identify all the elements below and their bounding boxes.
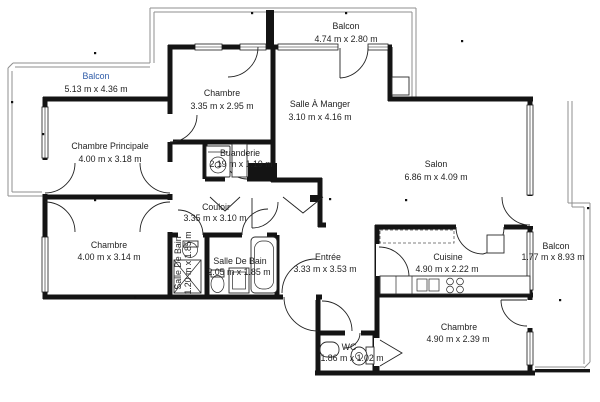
kitchen-appliance [487,235,504,253]
balcony-edge [13,63,150,67]
balcony-outlines [8,8,590,372]
room-label-chambre-principale: Chambre Principale [71,141,148,151]
room-dims-balcon-droite: 1.77 m x 8.93 m [521,252,584,262]
window [195,44,222,50]
kitchen-counter [380,276,530,294]
door-arc [501,300,527,326]
terrace-edge [412,8,416,98]
room-dims-chambre-ouest: 4.00 m x 3.14 m [77,252,140,262]
door-arc [322,301,352,331]
window [42,237,48,292]
window [527,332,533,365]
door-arc [228,47,258,77]
kitchen-upper-cabinets [380,230,454,243]
balcony-right-edge [568,203,590,207]
room-dims-wc: 1.86 m x 1.02 m [320,353,383,363]
room-label-chambre-ouest: Chambre [91,240,127,250]
door-arc [340,48,368,78]
room-dims-salle-a-manger: 3.10 m x 4.16 m [288,112,351,122]
room-label-balcon-top: Balcon [333,21,360,31]
room-label-couloir: Couloir [202,202,230,212]
balcony-chamfer [584,362,590,368]
room-label-salon: Salon [425,159,448,169]
door-arc [456,227,483,254]
door-arc [252,198,278,228]
window [527,105,533,195]
room-dims-chambre-principale: 4.00 m x 3.18 m [78,154,141,164]
floor-plan: Balcon 5.13 m x 4.36 m Balcon 4.74 m x 2… [0,0,600,402]
room-dims-chambre-nord: 3.35 m x 2.95 m [190,101,253,111]
room-dims-salon: 6.86 m x 4.09 m [404,172,467,182]
door-arc [170,115,197,142]
room-label-wc: WC [342,342,357,352]
room-label-balcon-droite: Balcon [543,241,570,251]
room-dims-balcon-top: 4.74 m x 2.80 m [314,34,377,44]
door-arc [45,163,75,193]
window [240,44,266,50]
window [278,44,338,50]
room-dims-buanderie: 2.19 m x 1.19 m [209,159,272,169]
room-dims-chambre-sud: 4.90 m x 2.39 m [426,334,489,344]
room-labels: Balcon 5.13 m x 4.36 m Balcon 4.74 m x 2… [64,21,584,363]
balcony-right-edge [584,203,590,364]
doors [45,47,530,366]
room-label-entree: Entrée [315,252,341,262]
room-label-salle-a-manger: Salle À Manger [290,99,350,109]
door-arc [502,197,530,225]
door-arc [379,247,409,277]
room-label-cuisine: Cuisine [433,252,462,262]
window [42,107,48,158]
terrace-pillar [392,77,409,95]
room-label-chambre-nord: Chambre [204,88,240,98]
window [368,44,388,50]
room-label-salle-de-bain-2: Salle De Bain [213,256,266,266]
door-arc [45,202,75,232]
door-arc [140,202,170,232]
door-arc [284,297,318,331]
walls [43,10,535,375]
balcony-right-edge [568,101,572,207]
balcony-parapet [535,369,590,372]
balcony-edge [150,8,154,63]
room-dims-cuisine: 4.90 m x 2.22 m [415,264,478,274]
balcony-edge [8,63,13,196]
room-dims-salle-de-bain-2: 2.05 m x 1.85 m [207,267,270,277]
room-dims-salle-de-bain-1: 1.20 m x 1.85 m [183,231,193,294]
room-label-balcon-top-left: Balcon [83,71,110,81]
balcony-edge [8,192,44,196]
room-label-buanderie: Buanderie [220,148,260,158]
room-dims-entree: 3.33 m x 3.53 m [293,264,356,274]
room-label-chambre-sud: Chambre [441,322,477,332]
room-dims-couloir: 3.35 m x 3.10 m [183,213,246,223]
room-dims-balcon-top-left: 5.13 m x 4.36 m [64,84,127,94]
door-arc [140,163,170,193]
room-label-salle-de-bain-1: Salle De Bain [173,236,183,289]
